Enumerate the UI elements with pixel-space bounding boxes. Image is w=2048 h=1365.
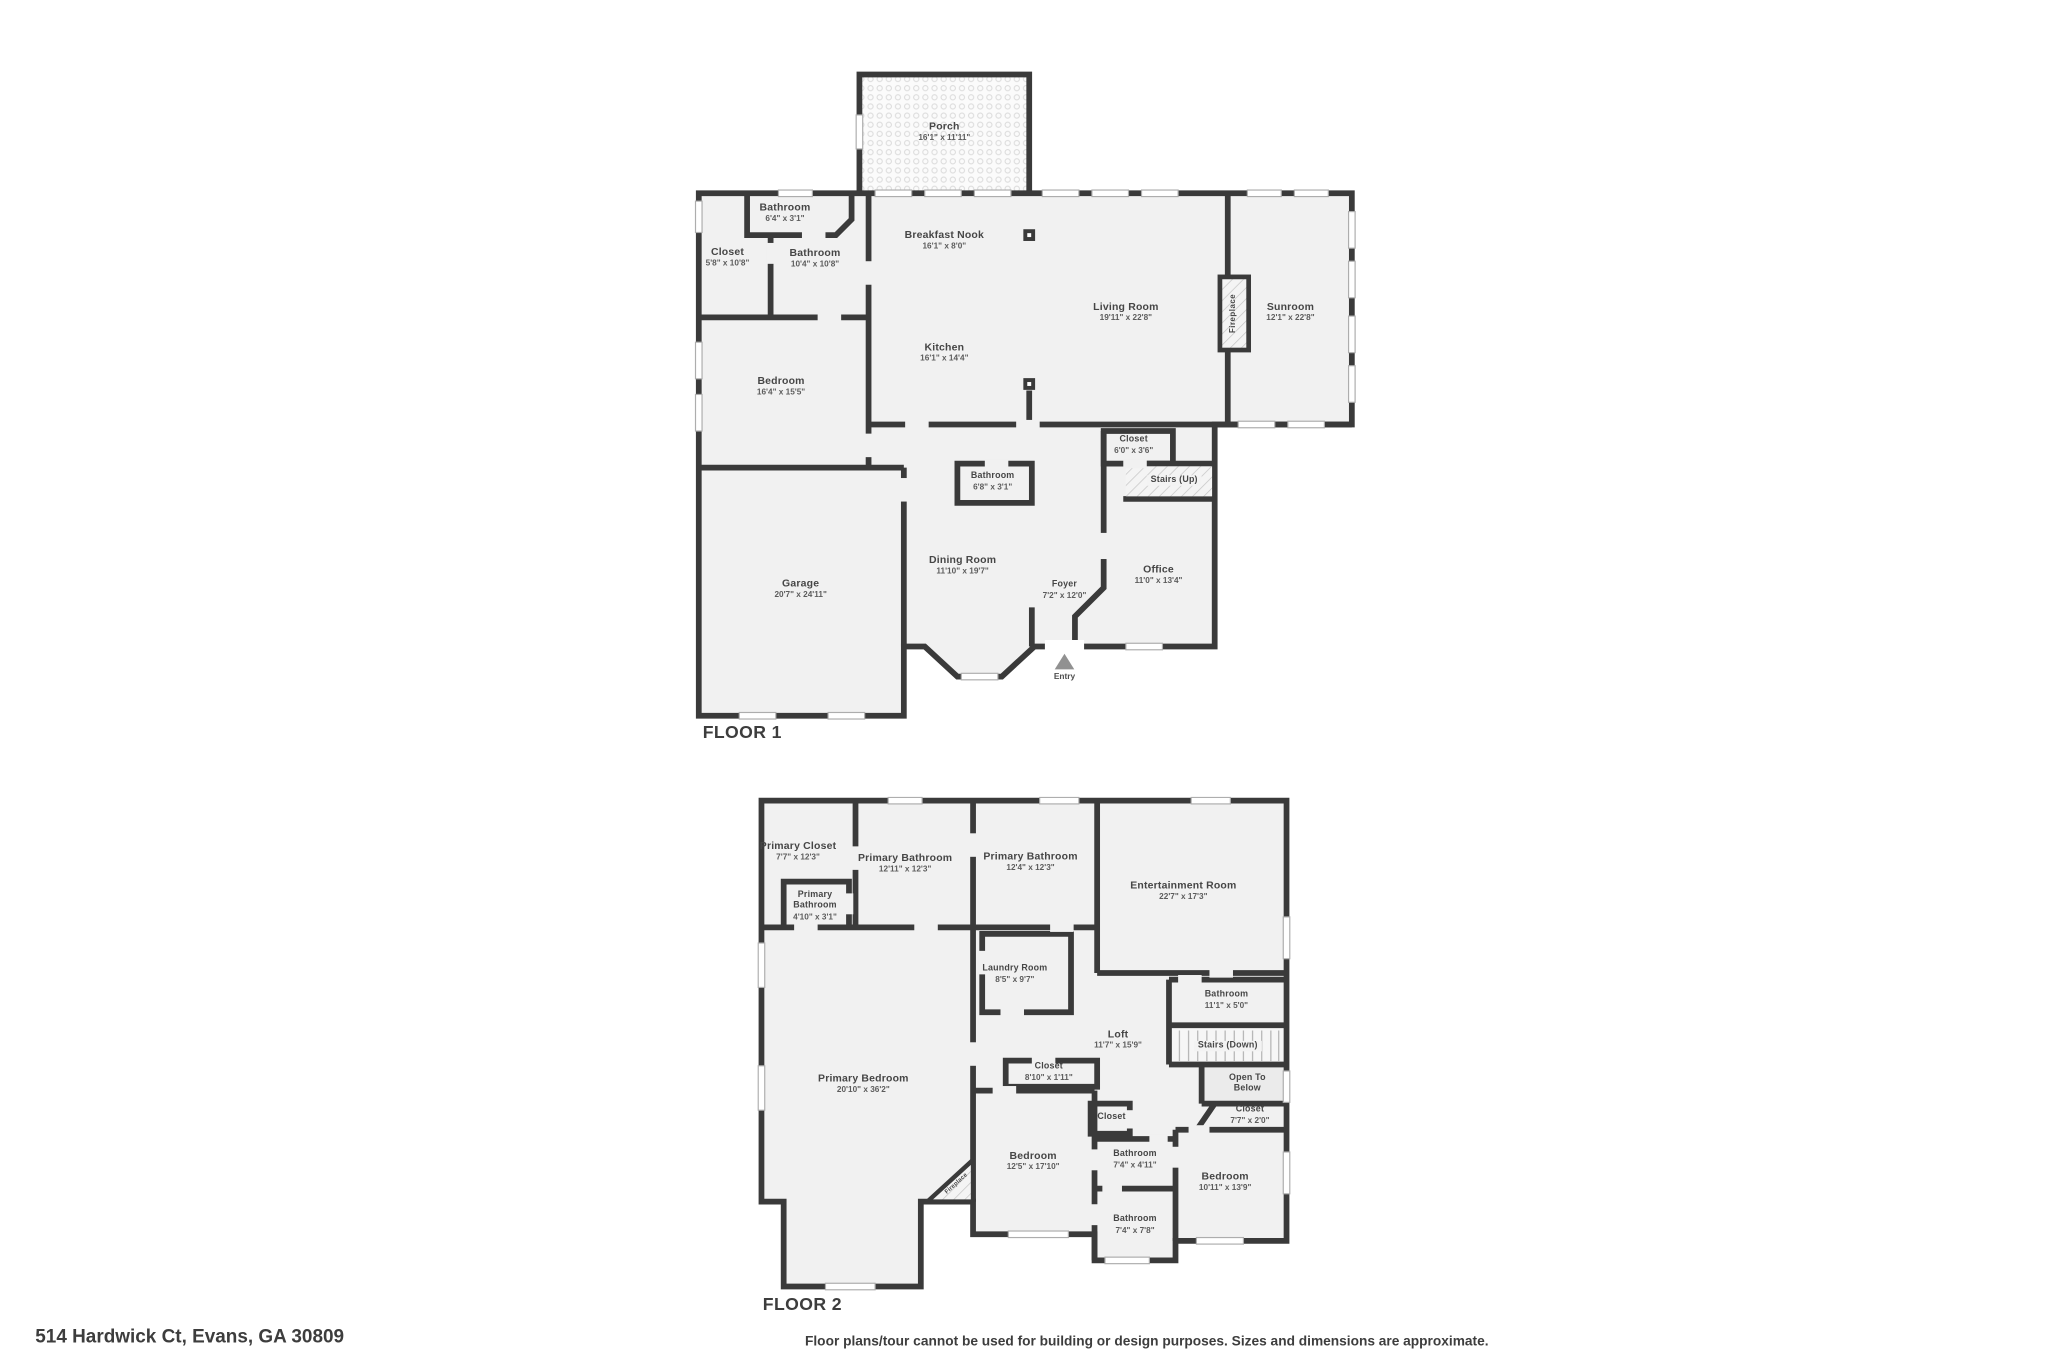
room-label-kitchen: Kitchen 16'1" x 14'4" — [920, 341, 968, 364]
entry-opening — [1045, 640, 1084, 652]
room-label-dining-room: Dining Room 11'10" x 19'7" — [929, 554, 996, 577]
room-label-bathroom-4: Bathroom 11'1" x 5'0" — [1205, 990, 1248, 1011]
room-label-garage: Garage 20'7" x 24'11" — [774, 578, 826, 601]
room-label-open-to-below: Open To Below — [1217, 1073, 1277, 1094]
room-label-bathroom-6: Bathroom 7'4" x 7'8" — [1113, 1215, 1156, 1236]
room-label-breakfast-nook: Breakfast Nook 16'1" x 8'0" — [905, 229, 984, 252]
room-label-bedroom-2: Bedroom 12'5" x 17'10" — [1007, 1150, 1060, 1173]
room-label-primary-bathroom-1: Primary Bathroom 12'11" x 12'3" — [858, 852, 952, 875]
room-label-laundry-room: Laundry Room 8'5" x 9'7" — [982, 964, 1047, 985]
floor-plan-page: Porch 16'1" x 11'11" Bathroom 6'4" x 3'1… — [0, 0, 2048, 1365]
room-label-closet-2: Closet 6'0" x 3'6" — [1114, 435, 1153, 456]
room-label-living-room: Living Room 19'11" x 22'8" — [1093, 301, 1158, 324]
floor1-plate — [699, 193, 1352, 715]
room-label-bedroom-1: Bedroom 16'4" x 15'5" — [757, 375, 805, 398]
room-label-office: Office 11'0" x 13'4" — [1135, 563, 1183, 586]
porch-door-opening — [856, 115, 863, 149]
room-label-foyer: Foyer 7'2" x 12'0" — [1043, 580, 1087, 601]
room-label-closet-4: Closet 7'7" x 2'0" — [1230, 1105, 1269, 1126]
room-label-bathroom-5: Bathroom 7'4" x 4'11" — [1113, 1149, 1156, 1170]
room-label-entertainment-room: Entertainment Room 22'7" x 17'3" — [1130, 879, 1236, 902]
room-label-closet-5: Closet — [1097, 1113, 1125, 1124]
room-label-bathroom-2: Bathroom 10'4" x 10'8" — [790, 247, 841, 270]
room-label-primary-bedroom: Primary Bedroom 20'10" x 36'2" — [818, 1073, 909, 1096]
room-label-sunroom: Sunroom 12'1" x 22'8" — [1266, 301, 1314, 324]
room-label-closet-1: Closet 5'8" x 10'8" — [706, 246, 750, 269]
room-label-stairs-up: Stairs (Up) — [1147, 475, 1202, 486]
entry-marker-icon — [1055, 654, 1075, 670]
room-label-stairs-down: Stairs (Down) — [1194, 1041, 1262, 1052]
room-label-primary-bathroom-3: Primary Bathroom 4'10" x 3'1" — [785, 891, 845, 923]
entry-label: Entry — [1054, 673, 1075, 682]
room-label-bathroom-1: Bathroom 6'4" x 3'1" — [760, 201, 811, 224]
room-label-bedroom-3: Bedroom 10'11" x 13'9" — [1199, 1171, 1251, 1194]
property-address: 514 Hardwick Ct, Evans, GA 30809 — [35, 1327, 344, 1348]
disclaimer-text: Floor plans/tour cannot be used for buil… — [805, 1334, 1489, 1350]
room-label-primary-closet: Primary Closet 7'7" x 12'3" — [760, 840, 837, 863]
room-label-fireplace-1: Fireplace — [1230, 294, 1239, 333]
room-label-primary-bathroom-2: Primary Bathroom 12'4" x 12'3" — [983, 851, 1077, 874]
room-label-porch: Porch 16'1" x 11'11" — [918, 120, 970, 143]
room-label-bathroom-3: Bathroom 6'8" x 3'1" — [971, 471, 1014, 492]
room-label-loft: Loft 11'7" x 15'9" — [1094, 1028, 1142, 1051]
room-label-closet-3: Closet 8'10" x 1'11" — [1025, 1062, 1073, 1083]
floor2-title: FLOOR 2 — [763, 1294, 842, 1314]
floor1-title: FLOOR 1 — [703, 722, 782, 742]
